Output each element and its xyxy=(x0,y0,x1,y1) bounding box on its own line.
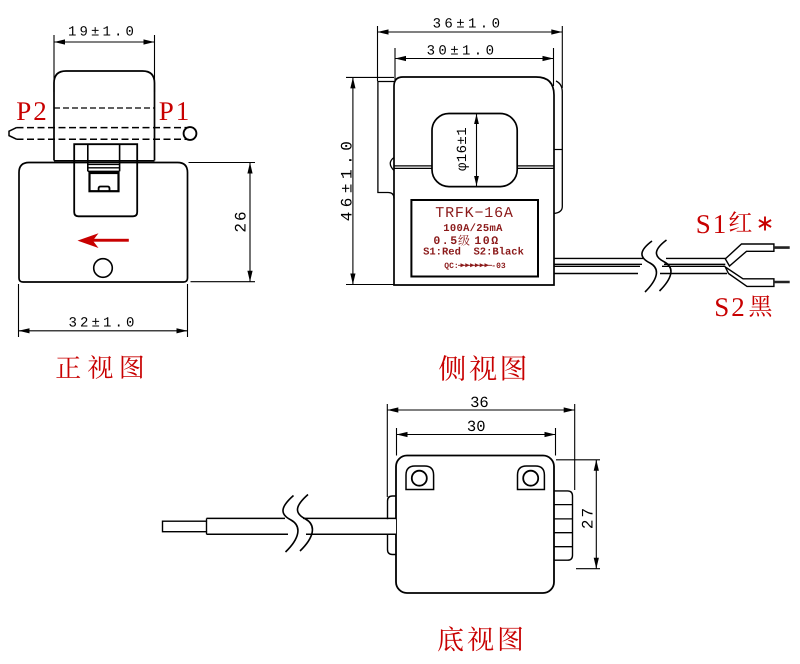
svg-text:-03: -03 xyxy=(491,262,506,271)
svg-text:QC:: QC: xyxy=(444,262,458,271)
svg-text:27: 27 xyxy=(580,506,598,529)
svg-text:46±1.0: 46±1.0 xyxy=(339,137,357,222)
svg-text:32±1.0: 32±1.0 xyxy=(68,316,137,332)
svg-text:100A/25mA: 100A/25mA xyxy=(443,223,503,235)
svg-text:36±1.0: 36±1.0 xyxy=(433,17,504,33)
svg-text:φ16±1: φ16±1 xyxy=(455,127,471,171)
svg-text:30±1.0: 30±1.0 xyxy=(427,44,498,60)
svg-text:S2: S2 xyxy=(714,292,747,322)
svg-text:26: 26 xyxy=(232,209,250,232)
svg-text:TRFK−16A: TRFK−16A xyxy=(435,205,513,222)
svg-text:36: 36 xyxy=(470,394,489,412)
svg-text:P1: P1 xyxy=(159,96,192,126)
svg-text:19±1.0: 19±1.0 xyxy=(68,25,137,41)
svg-text:S1:Red S2:Black: S1:Red S2:Black xyxy=(423,247,524,259)
svg-text:S1: S1 xyxy=(696,209,729,239)
svg-text:P2: P2 xyxy=(16,96,49,126)
svg-text:30: 30 xyxy=(467,418,486,436)
